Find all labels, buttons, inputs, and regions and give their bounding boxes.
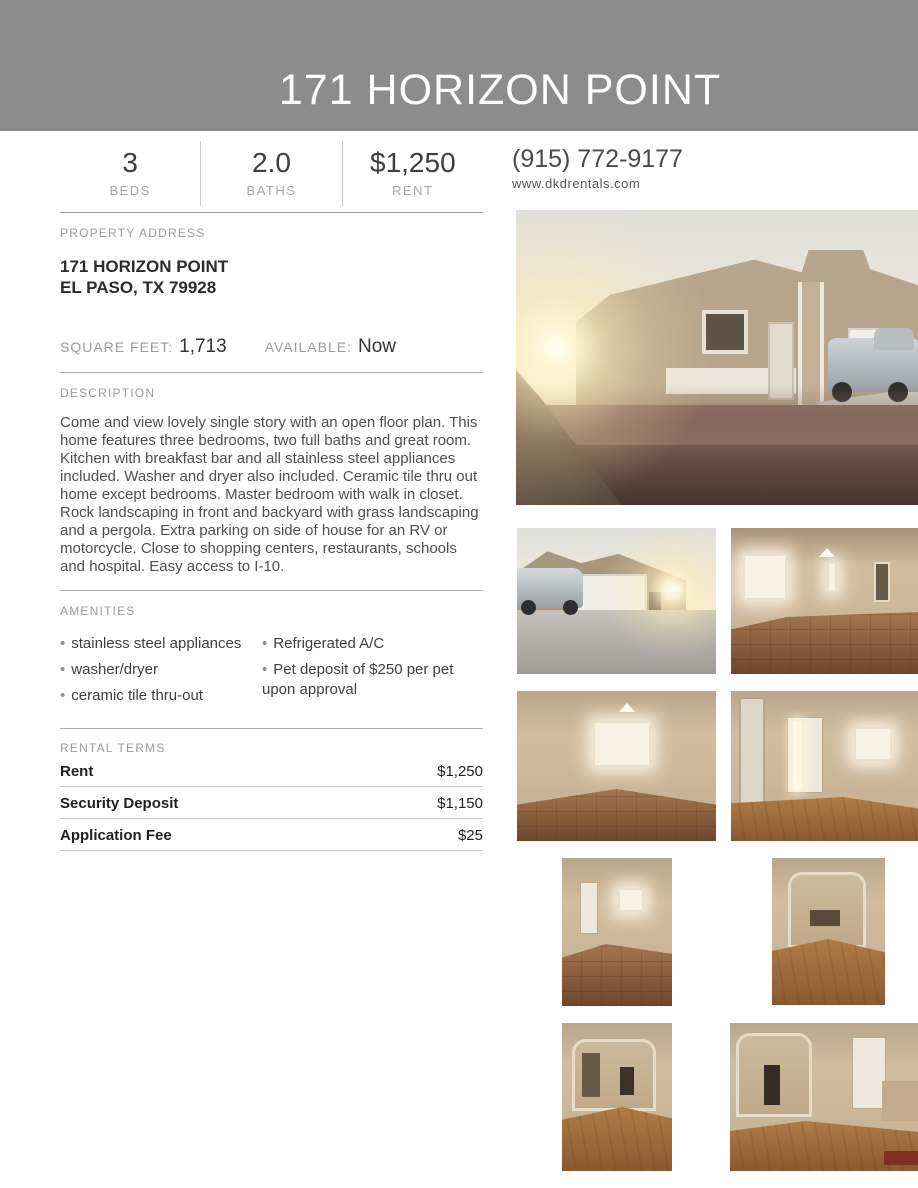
amenity-item: ceramic tile thru-out xyxy=(60,686,262,706)
amenity-item: washer/dryer xyxy=(60,660,262,680)
beds-label: BEDS xyxy=(60,183,200,198)
amenity-item: stainless steel appliances xyxy=(60,634,262,654)
photo-living-archway-door xyxy=(730,1023,918,1171)
photo-living-room-tile xyxy=(731,528,918,674)
amenities-section: AMENITIES stainless steel appliances was… xyxy=(60,591,483,729)
term-label: Rent xyxy=(60,763,93,780)
available-value: Now xyxy=(358,336,396,357)
description-label: DESCRIPTION xyxy=(60,386,483,400)
amenity-item: Pet deposit of $250 per pet upon approva… xyxy=(262,660,483,700)
property-address-label: PROPERTY ADDRESS xyxy=(60,226,483,240)
beds-value: 3 xyxy=(60,147,200,179)
header-banner: 171 HORIZON POINT xyxy=(0,0,918,131)
term-row-application-fee: Application Fee $25 xyxy=(60,821,483,851)
phone-number: (915) 772-9177 xyxy=(512,146,683,173)
available-label: AVAILABLE: xyxy=(265,339,352,355)
address-line2: EL PASO, TX 79928 xyxy=(60,277,483,298)
baths-label: BATHS xyxy=(201,183,341,198)
rental-terms-label: RENTAL TERMS xyxy=(60,741,483,755)
term-row-rent: Rent $1,250 xyxy=(60,757,483,787)
stat-beds: 3 BEDS xyxy=(60,141,200,206)
left-column: 3 BEDS 2.0 BATHS $1,250 RENT PROPERTY AD… xyxy=(60,131,483,851)
description-text: Come and view lovely single story with a… xyxy=(60,414,483,576)
term-value: $1,150 xyxy=(437,795,483,812)
photo-driveway-garage xyxy=(517,528,716,674)
address-line1: 171 HORIZON POINT xyxy=(60,256,483,277)
website-link[interactable]: www.dkdrentals.com xyxy=(512,176,683,191)
amenities-column-1: stainless steel appliances washer/dryer … xyxy=(60,634,262,712)
property-address-section: PROPERTY ADDRESS 171 HORIZON POINT EL PA… xyxy=(60,213,483,373)
baths-value: 2.0 xyxy=(201,147,341,179)
sqft-available-row: SQUARE FEET:1,713AVAILABLE:Now xyxy=(60,336,483,373)
stat-rent: $1,250 RENT xyxy=(342,141,483,206)
flyer-page: 171 HORIZON POINT 3 BEDS 2.0 BATHS $1,25… xyxy=(0,0,918,1188)
term-label: Security Deposit xyxy=(60,795,178,812)
photo-dining-archway xyxy=(772,858,885,1005)
stat-baths: 2.0 BATHS xyxy=(200,141,341,206)
term-value: $25 xyxy=(458,827,483,844)
photo-hallway-wood xyxy=(562,1023,672,1171)
rental-terms-section: RENTAL TERMS Rent $1,250 Security Deposi… xyxy=(60,729,483,851)
stats-row: 3 BEDS 2.0 BATHS $1,250 RENT xyxy=(60,141,483,213)
term-value: $1,250 xyxy=(437,763,483,780)
photo-great-room-window xyxy=(517,691,716,841)
square-feet-label: SQUARE FEET: xyxy=(60,339,173,355)
contact-block: (915) 772-9177 www.dkdrentals.com xyxy=(512,146,683,191)
photo-exterior-front xyxy=(516,210,918,505)
page-title: 171 HORIZON POINT xyxy=(279,66,721,115)
term-label: Application Fee xyxy=(60,827,172,844)
term-row-security-deposit: Security Deposit $1,150 xyxy=(60,789,483,819)
description-section: DESCRIPTION Come and view lovely single … xyxy=(60,373,483,591)
photo-room-tile-window xyxy=(562,858,672,1006)
amenity-item: Refrigerated A/C xyxy=(262,634,483,654)
photo-entryway-door xyxy=(731,691,918,841)
amenities-column-2: Refrigerated A/C Pet deposit of $250 per… xyxy=(262,634,483,712)
amenities-label: AMENITIES xyxy=(60,604,483,618)
square-feet-value: 1,713 xyxy=(179,336,227,357)
rent-label: RENT xyxy=(343,183,483,198)
rent-value: $1,250 xyxy=(343,147,483,179)
